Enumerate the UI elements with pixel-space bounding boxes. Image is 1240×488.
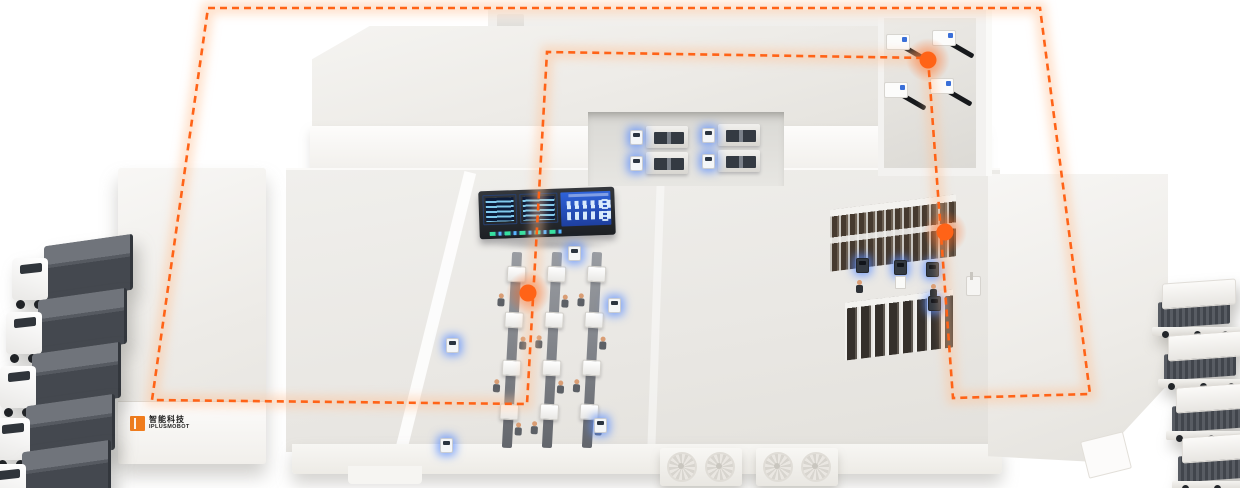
agv-route-overlay [0, 0, 1240, 488]
waypoint-dot [520, 285, 537, 302]
factory-scene: 智能科技 IPLUSMOBOT [0, 0, 1240, 488]
waypoint-dot [937, 224, 954, 241]
waypoint-dot [920, 52, 937, 69]
route-glow [152, 8, 1090, 404]
